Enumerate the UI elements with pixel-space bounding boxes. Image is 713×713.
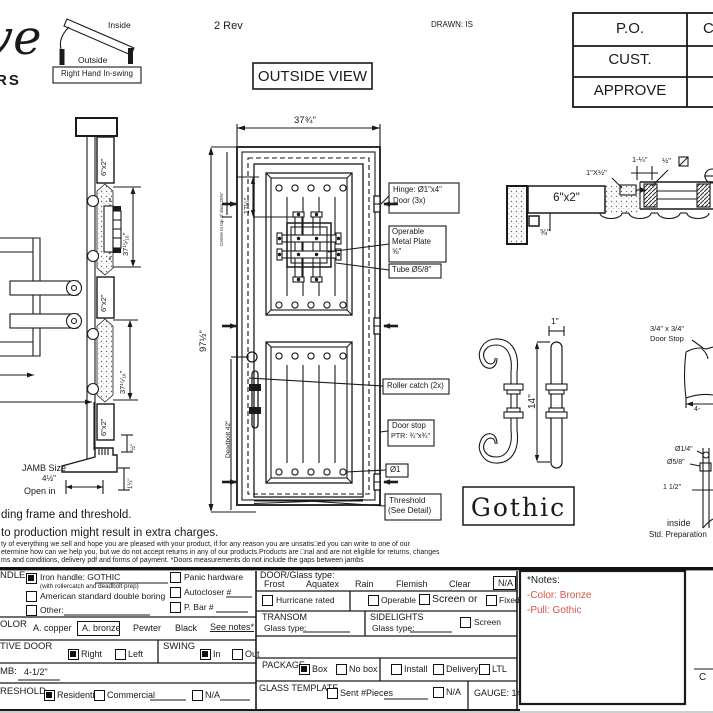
- jamb-size-value: 4½": [42, 475, 56, 484]
- box-label: Box: [312, 665, 328, 675]
- checkbox-sidelights-screen[interactable]: [460, 617, 471, 628]
- prep-one-half: 1 1/2": [663, 484, 681, 492]
- swing-outside-label: Outside: [78, 56, 107, 65]
- logo-script: ve: [0, 12, 42, 65]
- checkbox-other-handle[interactable]: [26, 605, 37, 616]
- iron-handle-label: Iron handle: GOTHIC: [40, 573, 120, 582]
- note-pull: -Pull: Gothic: [527, 605, 581, 616]
- swing-out-label: Out: [245, 650, 260, 660]
- callout-roller: Roller catch (2x): [387, 382, 444, 391]
- install-label: Install: [404, 665, 428, 675]
- jamb-block-label-3: 6"x2": [100, 419, 108, 436]
- revision-label: 2 Rev: [214, 20, 243, 32]
- doorstop-label: Door Stop: [650, 335, 684, 343]
- footer-small2: etermine how can we help you, but we do …: [1, 549, 439, 557]
- drawn-by-label: DRAWN: IS: [431, 21, 473, 30]
- color-option-pewter: Pewter: [133, 624, 161, 634]
- form-handle-label: NDLE: [0, 571, 25, 581]
- form-jamb-value: 4-1/2": [24, 668, 48, 678]
- checkbox-american-boring[interactable]: [26, 591, 37, 602]
- checkbox-ltl[interactable]: [479, 664, 490, 675]
- callout-threshold-line2: (See Detail): [388, 506, 431, 515]
- checkbox-delivery[interactable]: [433, 664, 444, 675]
- callout-tube: Tube Ø5/8": [392, 266, 431, 275]
- dim-centre-note: Centre to top of door 25⅜": [219, 192, 224, 246]
- notes-title: *Notes:: [527, 575, 560, 586]
- swing-inside-label: Inside: [108, 21, 131, 30]
- po-label: P.O.: [573, 21, 687, 38]
- callout-dia: Ø1: [390, 466, 400, 475]
- swing-tag: Right Hand In-swing: [53, 70, 141, 79]
- no-box-label: No box: [349, 665, 378, 675]
- callout-plate-line2: Metal Plate: [392, 238, 431, 247]
- checkbox-operable[interactable]: [368, 595, 379, 606]
- swing-left-label: Left: [128, 650, 143, 660]
- glass-option-rain: Rain: [355, 580, 374, 590]
- checkbox-install[interactable]: [391, 664, 402, 675]
- dim-grille: 17¼": [244, 198, 252, 214]
- pbar-label: P. Bar #: [184, 603, 214, 612]
- checkbox-panic-hardware[interactable]: [170, 572, 181, 583]
- dim-door-height: 97½": [199, 330, 209, 352]
- glass-option-frost: Frost: [264, 580, 285, 590]
- footer-line1: ding frame and threshold.: [1, 509, 131, 522]
- checkbox-sent-pieces[interactable]: [327, 688, 338, 699]
- swing-right-label: Right: [81, 650, 102, 660]
- jamb-block-label-2: 6"x2": [100, 295, 108, 312]
- handle-width-dim: 1": [551, 317, 559, 326]
- checkbox-hurricane[interactable]: [262, 595, 273, 606]
- sidelights-label: SIDELIGHTS: [370, 613, 424, 623]
- sent-pieces-label: Sent #Pieces: [340, 689, 393, 699]
- glass-option-na: N/A: [498, 579, 513, 589]
- prep-inside-label: inside: [667, 519, 691, 529]
- commercial-label: Commercial: [107, 691, 155, 701]
- checkbox-autocloser[interactable]: [170, 587, 181, 598]
- checkbox-fixed[interactable]: [486, 595, 497, 606]
- footer-small3: ms and conditions, delivery pdf and form…: [1, 557, 364, 565]
- ltl-label: LTL: [492, 665, 507, 675]
- callout-plate-line3: ⅝": [392, 248, 401, 257]
- checkbox-residential[interactable]: [44, 690, 55, 701]
- threshold-na-label: N/A: [205, 691, 220, 701]
- handle-length-dim: 14'': [527, 394, 538, 409]
- checkbox-template-na[interactable]: [433, 687, 444, 698]
- prep-dia-quarter: Ø1/4": [675, 446, 693, 454]
- transom-glass-type-label: Glass type:: [264, 624, 307, 633]
- template-na-label: N/A: [446, 688, 461, 698]
- dim-one-quarter: 1¼": [128, 479, 135, 489]
- callout-stop-line1: Door stop: [392, 422, 426, 431]
- jamb-size-label: JAMB Size: [22, 464, 66, 474]
- checkbox-swing-left[interactable]: [115, 649, 126, 660]
- iron-handle-sub: (with rollercatch and deadbolt prep): [40, 584, 139, 591]
- panic-hardware-label: Panic hardware: [184, 573, 243, 582]
- corner-partial-letter: C: [699, 672, 706, 683]
- sidelights-glass-type-label: Glass type:: [372, 624, 415, 633]
- open-in-label: Open in: [24, 487, 56, 497]
- checkbox-iron-handle[interactable]: [26, 573, 37, 584]
- note-color: -Color: Bronze: [527, 590, 591, 601]
- callout-plate-line1: Operable: [392, 228, 424, 237]
- transom-label: TRANSOM: [262, 613, 307, 623]
- screen-or-label: Screen or: [432, 594, 478, 606]
- doorstop-dim: 3/4" x 3/4": [650, 325, 684, 333]
- checkbox-no-box[interactable]: [336, 664, 347, 675]
- operable-label: Operable: [381, 596, 416, 605]
- head-block-label: 6"x2": [528, 192, 605, 205]
- prep-std-label: Std. Preparation: [649, 531, 707, 540]
- color-option-black: Black: [175, 624, 197, 634]
- handle-name-label: Gothic: [463, 494, 574, 522]
- form-swing-label: SWING: [163, 642, 195, 652]
- doorstop-four-dim: 4-: [694, 406, 700, 414]
- po-value-partial: C: [703, 21, 713, 38]
- fixed-label: Fixed: [499, 596, 520, 605]
- dim-jamb-span-1: 37¹⁵⁄₁₆": [122, 233, 130, 256]
- form-active-door-label: TIVE DOOR: [0, 642, 52, 652]
- approve-label: APPROVE: [573, 83, 687, 100]
- callout-hinge-line2: Door (3x): [393, 197, 426, 206]
- callout-threshold-line1: Threshold: [389, 496, 425, 505]
- dim-jamb-span-2: 37¹⁵⁄₁₆": [119, 371, 127, 394]
- form-threshold-label: RESHOLD: [0, 687, 46, 697]
- jamb-block-label-1: 6"x2": [100, 159, 108, 176]
- color-see-notes: See notes*: [210, 623, 254, 633]
- checkbox-screen-or[interactable]: [419, 594, 430, 605]
- glass-option-aquatex: Aquatex: [306, 580, 339, 590]
- view-title: OUTSIDE VIEW: [253, 69, 372, 86]
- other-handle-label: Other:: [40, 606, 64, 615]
- checkbox-pbar[interactable]: [170, 602, 181, 613]
- dim-door-width: 37¾": [294, 116, 316, 126]
- form-jamb-label: MB:: [0, 667, 17, 677]
- head-one-x-half: 1"X½": [586, 169, 607, 177]
- footer-small1: ty of everything we sell and hope you ar…: [1, 541, 410, 549]
- checkbox-box[interactable]: [299, 664, 310, 675]
- checkbox-swing-right[interactable]: [68, 649, 79, 660]
- callout-hinge-line1: Hinge: Ø1"x4": [393, 186, 442, 195]
- checkbox-threshold-na[interactable]: [192, 690, 203, 701]
- glass-option-clear: Clear: [449, 580, 471, 590]
- callout-stop-line2: PTR: ¾"x¾": [391, 432, 430, 440]
- head-half: ½": [662, 157, 671, 165]
- gauge-label: GAUGE: 14: [474, 689, 522, 699]
- delivery-label: Delivery: [446, 665, 479, 675]
- footer-line2: to production might result in extra char…: [1, 527, 218, 540]
- swing-in-label: In: [213, 650, 221, 660]
- logo-sub: RS: [0, 73, 21, 90]
- head-one-quarter: 1-¼": [632, 156, 648, 164]
- form-color-label: OLOR: [0, 620, 27, 630]
- checkbox-commercial[interactable]: [94, 690, 105, 701]
- color-option-bronze: A. bronze: [82, 624, 121, 634]
- hurricane-label: Hurricane rated: [276, 596, 335, 605]
- sidelights-screen-label: Screen: [474, 618, 501, 627]
- dim-half-inch: ½": [131, 444, 138, 451]
- checkbox-swing-in[interactable]: [200, 649, 211, 660]
- dim-deadbolt: Deadbolt 42": [225, 421, 232, 458]
- glass-option-flemish: Flemish: [396, 580, 428, 590]
- drawing-sheet: ve RS Inside Outside Right Hand In-swing…: [0, 0, 713, 713]
- cust-label: CUST.: [573, 52, 687, 69]
- autocloser-label: Autocloser #: [184, 588, 231, 597]
- american-boring-label: American standard double boring: [40, 592, 165, 601]
- color-option-copper: A. copper: [33, 624, 72, 634]
- drawing-linework: [0, 0, 713, 713]
- head-three-eighths: ⅜": [540, 228, 550, 237]
- checkbox-swing-out[interactable]: [232, 649, 243, 660]
- prep-dia-fiveeighths: Ø5/8": [667, 459, 685, 467]
